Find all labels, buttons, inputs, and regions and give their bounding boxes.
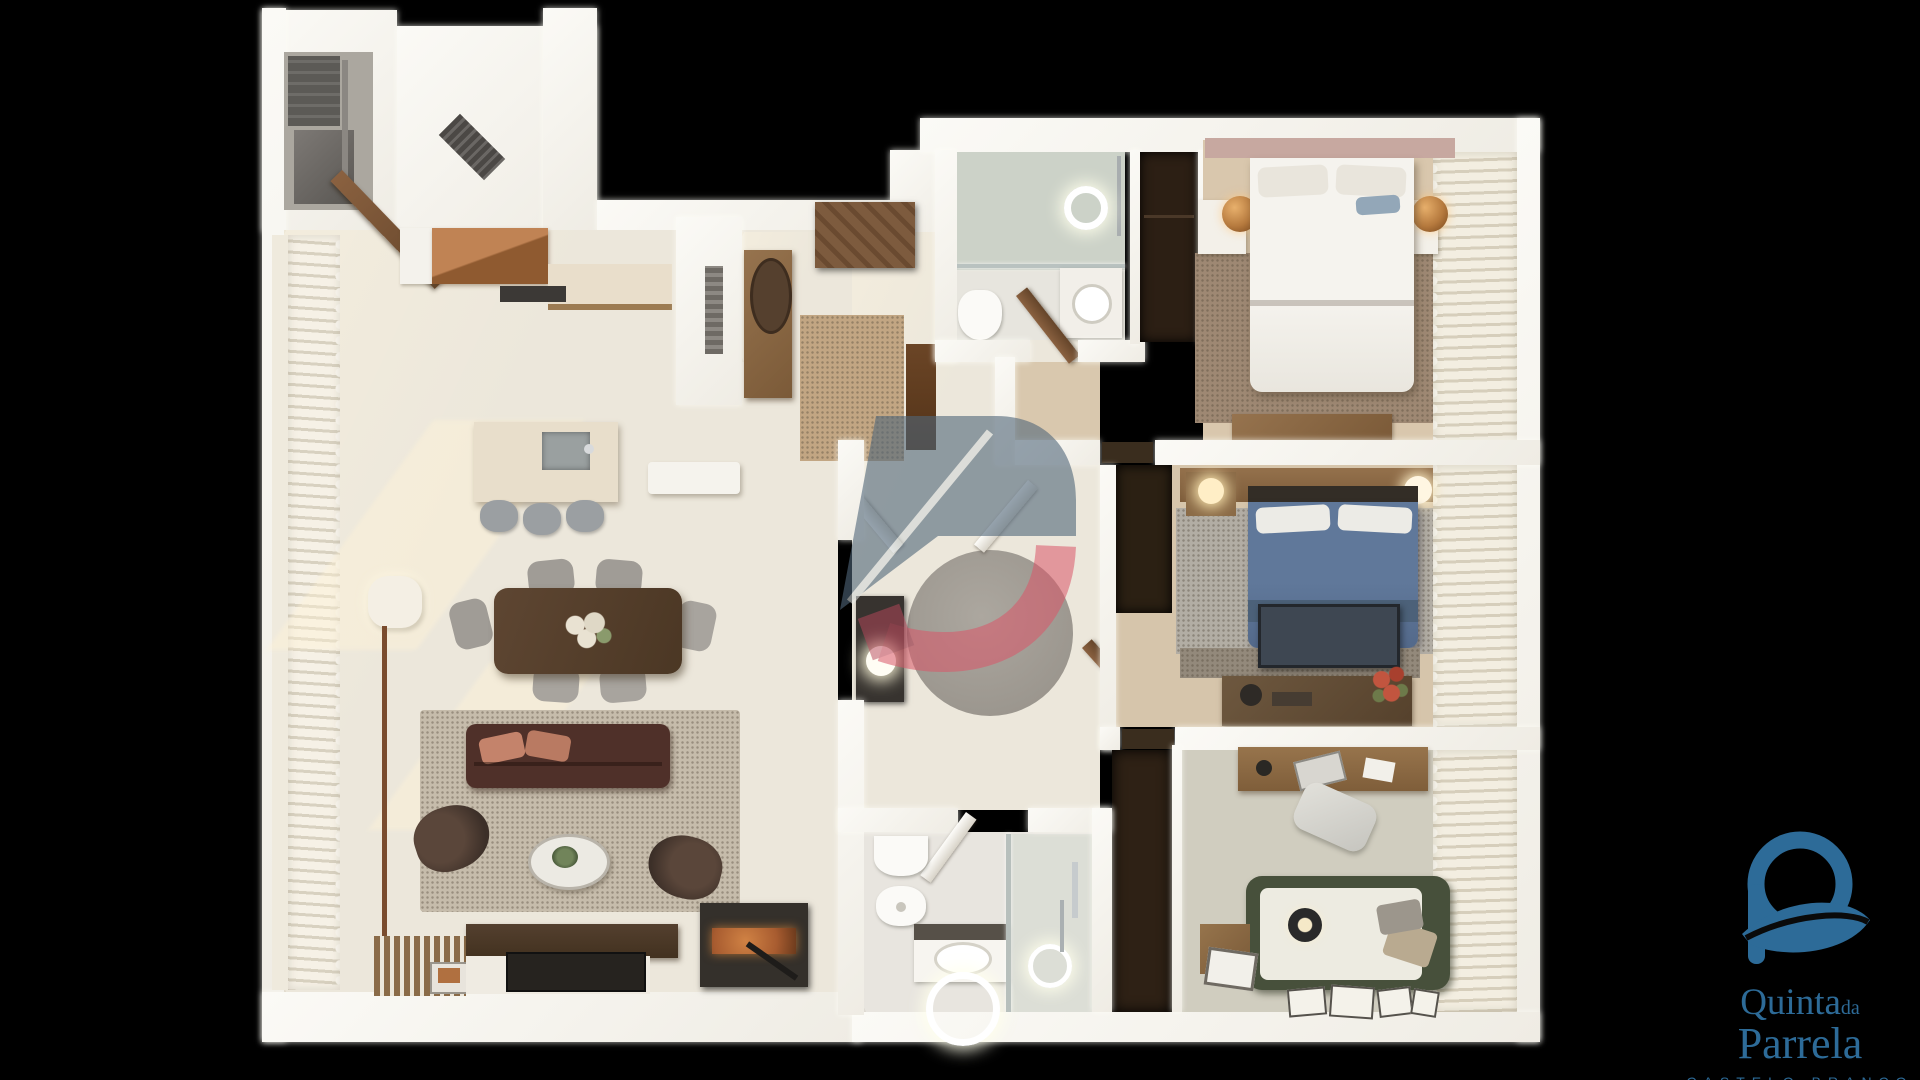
wall-nook-left-edge	[1130, 150, 1140, 344]
leaning-picture	[1204, 947, 1259, 992]
master-headboard-wall	[1205, 138, 1455, 158]
wall-bedroom3-left-edge	[1172, 745, 1182, 1012]
radiator	[705, 266, 723, 354]
toilet-2	[874, 836, 928, 876]
red-flower-bouquet	[1364, 658, 1414, 712]
bar-stool-2	[523, 503, 561, 535]
copper-lamp-right	[1412, 196, 1448, 232]
floor-frame-2	[1329, 985, 1375, 1020]
wall-master-bottom-b	[1155, 440, 1540, 465]
bar-stool-3	[566, 500, 604, 532]
master-pillow-1	[1257, 164, 1328, 198]
floor-frame-1	[1287, 986, 1327, 1017]
bedroom2-window-louvers	[1433, 465, 1517, 727]
bedroom3-wardrobe	[1112, 750, 1172, 1012]
bedroom2-wardrobe	[1116, 465, 1172, 613]
table-centerpiece	[556, 606, 620, 654]
wall-bath2-left-lower	[838, 700, 864, 1015]
shower-arm	[1060, 900, 1064, 952]
master-accent-pillow	[1355, 194, 1400, 215]
kitchen-counter	[548, 264, 672, 310]
brand-word1: Quinta	[1740, 982, 1841, 1023]
master-duvet-fold	[1250, 300, 1414, 306]
bath1-ceiling-light	[1064, 186, 1108, 230]
oval-mirror	[750, 258, 792, 334]
bar-stool-1	[480, 500, 518, 532]
brand-logo-mark	[1672, 822, 1920, 982]
coffee-table-decor	[552, 846, 578, 868]
brand-tagline: CASTELO BRANCO	[1672, 1075, 1920, 1080]
basin-2	[934, 942, 992, 976]
desk-lamp	[1256, 760, 1272, 776]
wall-right	[1517, 118, 1540, 1042]
wall-bedroom2-left	[1100, 465, 1116, 750]
brand-name: Quintada Parrela	[1672, 984, 1920, 1067]
wardrobe-shelf-line	[1144, 215, 1194, 218]
master-window-louvers	[1433, 152, 1517, 442]
brand-word2: Parrela	[1738, 1019, 1863, 1068]
brand-logo: Quintada Parrela CASTELO BRANCO	[1672, 822, 1920, 1074]
entry-canopy	[815, 202, 915, 268]
island-sink	[542, 432, 590, 470]
wall-bath2-right	[1092, 808, 1112, 1012]
cooktop	[500, 286, 566, 302]
dresser-vase	[1240, 684, 1262, 706]
shower-handle-bar	[1072, 862, 1078, 918]
reading-lamp	[1288, 908, 1322, 942]
mirror-ring-light	[926, 972, 1000, 1046]
wall-bedroom23-a	[1100, 727, 1120, 750]
blue-bed-pillow-2	[1337, 504, 1412, 534]
island-faucet	[584, 444, 594, 454]
master-pillow-2	[1335, 164, 1406, 198]
vanity-2-counter	[914, 924, 1008, 940]
toilet-1	[958, 290, 1002, 340]
dresser-tray	[1272, 692, 1312, 706]
wall-bath2-top-a	[838, 808, 958, 832]
television	[506, 952, 646, 992]
wall-column-block	[543, 8, 597, 232]
floor-plan-render: Quintada Parrela CASTELO BRANCO	[0, 0, 1920, 1080]
master-dresser	[1232, 414, 1392, 442]
shower-glass-2	[1006, 834, 1011, 1012]
wall-bottom-left	[262, 992, 862, 1042]
blue-bed-pillow-1	[1255, 504, 1330, 534]
sofa-seat-line	[474, 762, 662, 766]
master-door-opening	[1102, 442, 1153, 463]
bedroom3-door-opening	[1122, 729, 1174, 749]
floor-plant	[776, 862, 830, 934]
watermark-house-logo	[818, 398, 1090, 713]
balcony-strip	[272, 235, 288, 990]
wall-bath1-left	[935, 150, 957, 362]
wall-desk-shelf	[648, 462, 740, 494]
water-heater-unit	[288, 56, 340, 126]
floor-frame-4	[1410, 988, 1440, 1018]
master-wardrobe	[1140, 152, 1198, 342]
brand-word1-small: da	[1841, 997, 1860, 1019]
floor-lamp-shade	[368, 576, 422, 628]
floor-frame-3	[1376, 986, 1413, 1018]
basin-1	[1072, 284, 1112, 324]
shower-rail	[1117, 156, 1121, 236]
floor-lamp-pole	[382, 626, 387, 938]
shower-stool	[1028, 944, 1072, 988]
fridge-column	[400, 228, 434, 284]
copper-cabinets	[432, 228, 548, 284]
wall-bath1-bottom-a	[935, 340, 1030, 362]
bidet-drain	[896, 902, 906, 912]
bedroom2-lamp-left	[1198, 478, 1224, 504]
framed-art-photo	[438, 968, 460, 983]
